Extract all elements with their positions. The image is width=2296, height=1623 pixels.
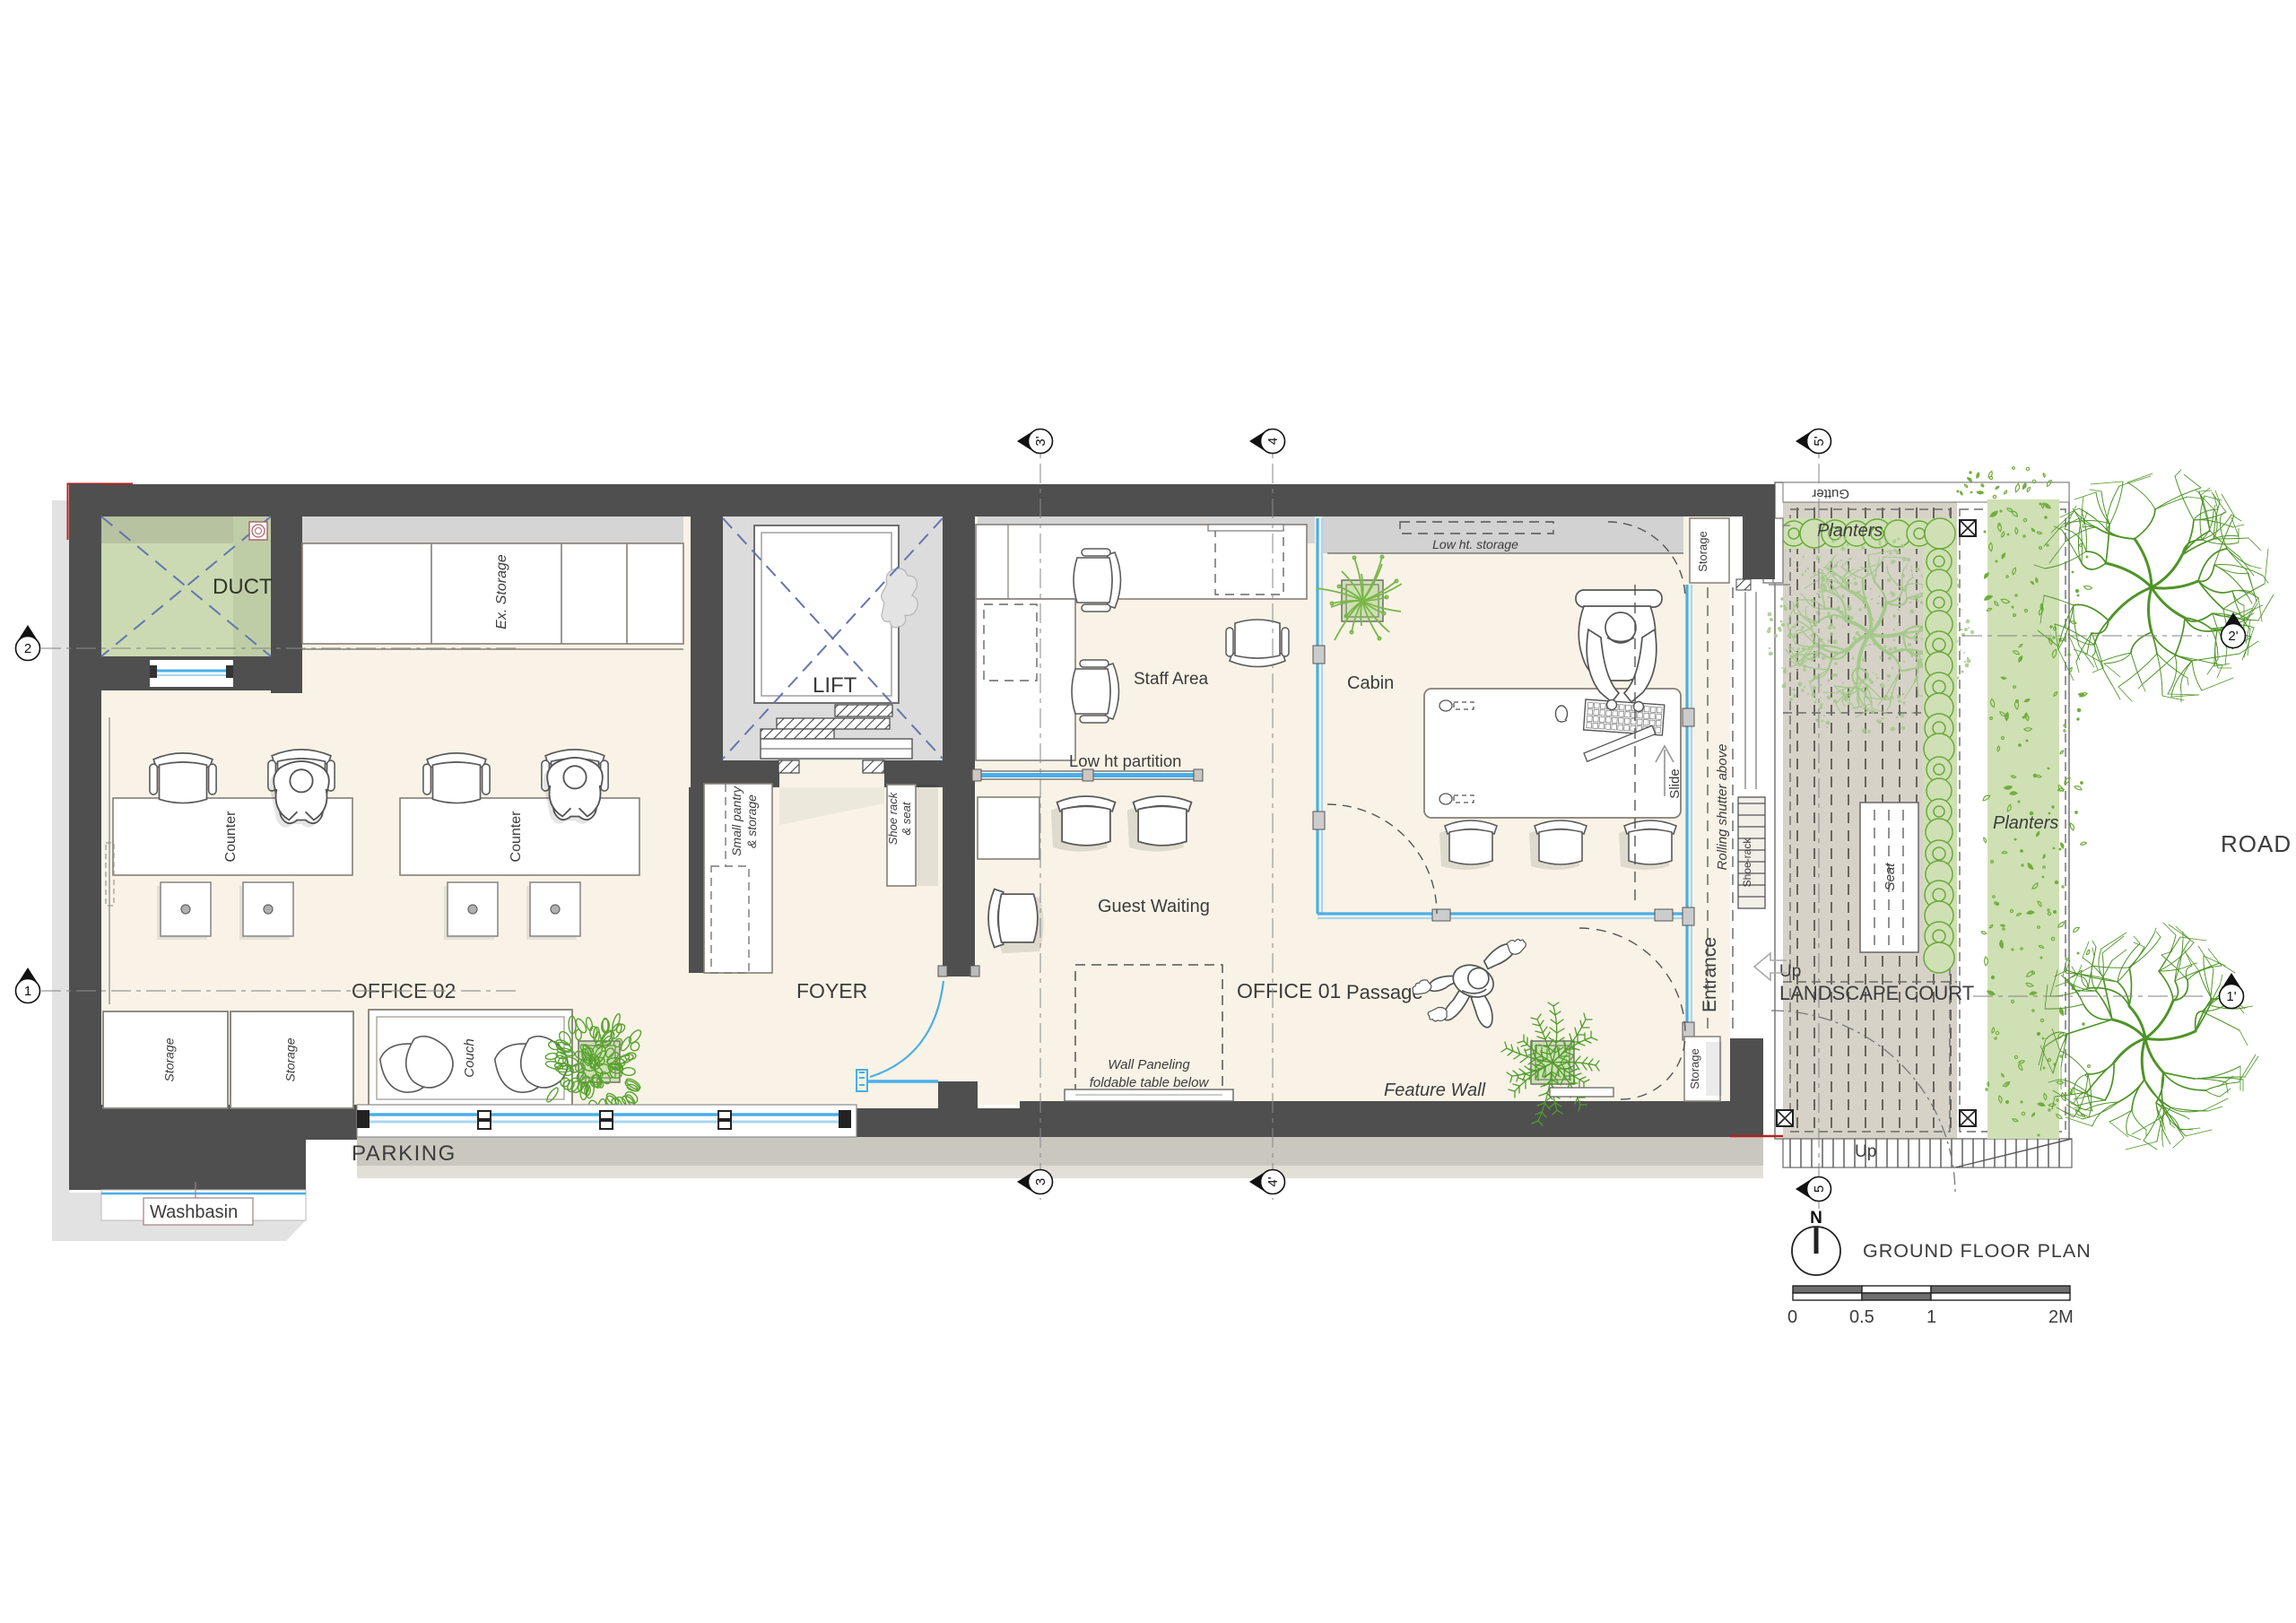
svg-text:PARKING: PARKING bbox=[352, 1141, 457, 1166]
svg-text:Rolling shutter above: Rolling shutter above bbox=[1715, 744, 1730, 871]
svg-text:Washbasin: Washbasin bbox=[150, 1202, 238, 1222]
svg-text:ROAD: ROAD bbox=[2221, 830, 2292, 857]
svg-text:2': 2' bbox=[2228, 629, 2238, 644]
svg-text:Low ht partition: Low ht partition bbox=[1069, 751, 1181, 770]
svg-text:2: 2 bbox=[24, 641, 31, 656]
svg-text:Ex. Storage: Ex. Storage bbox=[494, 554, 509, 629]
svg-text:Planters: Planters bbox=[1993, 813, 2058, 833]
svg-text:Storage: Storage bbox=[1688, 1048, 1701, 1089]
svg-text:Storage: Storage bbox=[1696, 531, 1709, 572]
svg-text:0.5: 0.5 bbox=[1849, 1307, 1874, 1327]
svg-text:N: N bbox=[1810, 1209, 1822, 1228]
svg-text:4: 4 bbox=[1265, 438, 1281, 445]
svg-text:Shoe-rack: Shoe-rack bbox=[1741, 838, 1753, 888]
svg-text:Feature Wall: Feature Wall bbox=[1384, 1081, 1486, 1100]
svg-text:Gutter: Gutter bbox=[1812, 486, 1849, 501]
svg-text:5: 5 bbox=[1812, 1185, 1827, 1193]
svg-text:FOYER: FOYER bbox=[796, 979, 867, 1002]
svg-text:DUCT: DUCT bbox=[213, 575, 273, 599]
svg-text:3: 3 bbox=[1033, 1178, 1048, 1185]
svg-text:LIFT: LIFT bbox=[813, 673, 857, 698]
svg-text:Passage: Passage bbox=[1346, 981, 1423, 1003]
svg-text:Wall Paneling: Wall Paneling bbox=[1108, 1057, 1190, 1072]
svg-text:4': 4' bbox=[1265, 1176, 1281, 1186]
svg-text:Entrance: Entrance bbox=[1700, 937, 1720, 1012]
svg-text:5': 5' bbox=[1812, 436, 1827, 446]
svg-text:0: 0 bbox=[1787, 1307, 1797, 1327]
svg-text:Slide: Slide bbox=[1667, 768, 1683, 798]
svg-text:Seat: Seat bbox=[1883, 863, 1898, 891]
svg-text:foldable table below: foldable table below bbox=[1090, 1075, 1210, 1090]
svg-text:Counter: Counter bbox=[509, 811, 524, 863]
svg-text:& storage: & storage bbox=[744, 794, 759, 848]
svg-text:Up: Up bbox=[1779, 962, 1801, 981]
svg-text:3': 3' bbox=[1033, 436, 1048, 446]
svg-text:GROUND FLOOR PLAN: GROUND FLOOR PLAN bbox=[1863, 1240, 2092, 1262]
svg-text:& seat: & seat bbox=[900, 801, 913, 835]
svg-text:Shoe rack: Shoe rack bbox=[886, 791, 900, 845]
svg-text:Low ht. storage: Low ht. storage bbox=[1432, 537, 1518, 551]
svg-text:Staff Area: Staff Area bbox=[1134, 670, 1209, 689]
svg-text:1: 1 bbox=[1926, 1307, 1936, 1327]
svg-text:Counter: Counter bbox=[223, 811, 239, 863]
svg-text:Cabin: Cabin bbox=[1347, 673, 1394, 693]
svg-text:1: 1 bbox=[24, 984, 31, 999]
svg-text:Up: Up bbox=[1855, 1142, 1876, 1161]
svg-text:OFFICE 01: OFFICE 01 bbox=[1237, 979, 1341, 1002]
svg-text:Planters: Planters bbox=[1817, 521, 1883, 541]
svg-text:Couch: Couch bbox=[462, 1038, 477, 1077]
svg-text:Storage: Storage bbox=[283, 1037, 298, 1081]
svg-text:2M: 2M bbox=[2048, 1307, 2074, 1327]
svg-text:Guest Waiting: Guest Waiting bbox=[1098, 897, 1210, 916]
svg-text:Storage: Storage bbox=[162, 1037, 177, 1081]
svg-text:LANDSCAPE COURT: LANDSCAPE COURT bbox=[1779, 982, 1974, 1004]
svg-text:Small pantry: Small pantry bbox=[729, 785, 744, 856]
svg-text:1': 1' bbox=[2226, 989, 2236, 1004]
